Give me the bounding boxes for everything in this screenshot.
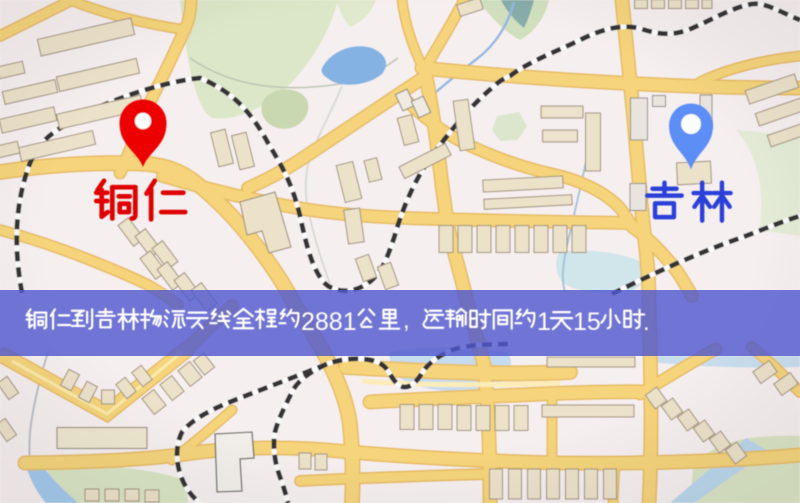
svg-text:.: .: [643, 309, 650, 336]
svg-text:,: ,: [403, 307, 410, 334]
svg-text:1: 1: [537, 308, 551, 336]
svg-text:2881: 2881: [301, 308, 357, 336]
svg-text:15: 15: [573, 308, 601, 336]
